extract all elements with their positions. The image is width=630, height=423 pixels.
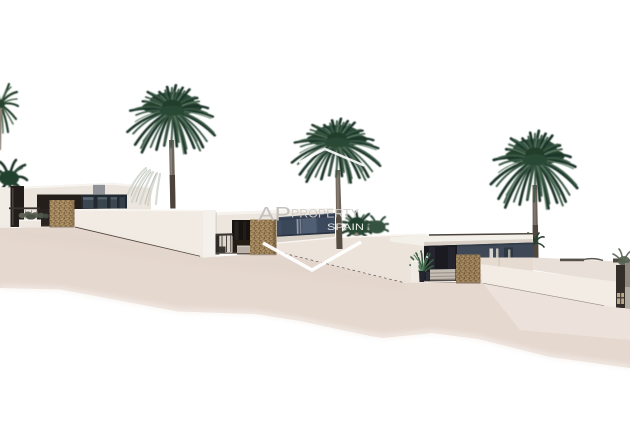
svg-text:PROPERTY: PROPERTY: [291, 209, 359, 221]
svg-text:AP: AP: [258, 205, 291, 226]
svg-text:SPAIN: SPAIN: [327, 222, 364, 233]
